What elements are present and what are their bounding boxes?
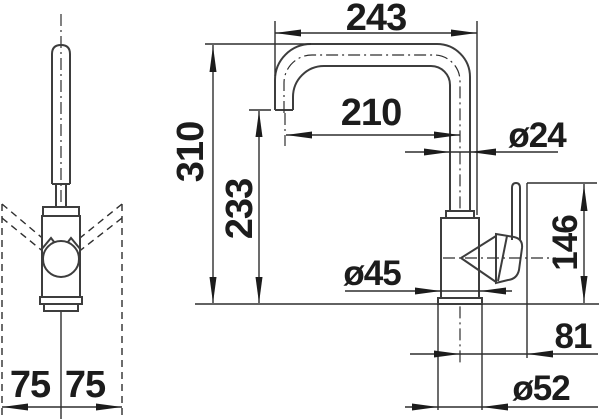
- base-flange-front: [40, 297, 82, 304]
- arrowhead: [470, 149, 496, 156]
- arrowhead: [527, 351, 553, 358]
- dim-label-233: 233: [219, 179, 261, 239]
- dimension-75-75: 75 75: [2, 364, 122, 411]
- dimension-210: 210: [285, 92, 460, 146]
- arrowhead: [256, 111, 263, 137]
- arrowhead: [434, 132, 460, 139]
- collar-front: [43, 207, 79, 216]
- dim-label-210: 210: [341, 92, 401, 134]
- arrowhead: [210, 46, 217, 72]
- arrowhead: [434, 351, 460, 358]
- dim-label-d45: ø45: [343, 254, 401, 293]
- dimension-d52: ø52: [405, 369, 598, 411]
- arrowhead: [210, 277, 217, 303]
- arrowhead: [415, 288, 441, 295]
- dimension-146: 146: [527, 183, 597, 303]
- faucet-technical-drawing: 75 75 243: [0, 0, 600, 419]
- dim-label-81: 81: [555, 317, 592, 356]
- arrowhead: [424, 149, 450, 156]
- arrowhead: [256, 277, 263, 303]
- dim-label-243: 243: [346, 0, 406, 39]
- dim-label-75-right: 75: [65, 364, 106, 406]
- base-skirt-front: [44, 304, 78, 311]
- dimension-d24: ø24: [405, 116, 567, 156]
- arrowhead: [482, 404, 508, 411]
- ball-joint-front: [43, 241, 79, 277]
- side-view: 243 310 233 210: [170, 0, 599, 411]
- arrowhead: [581, 276, 588, 302]
- spout-inner-contour: [293, 66, 450, 211]
- arrowhead: [480, 288, 506, 295]
- lever-rod: [512, 183, 520, 240]
- dim-label-75-left: 75: [10, 364, 51, 406]
- dim-label-d52: ø52: [512, 369, 570, 408]
- collar-side: [446, 211, 474, 218]
- dim-label-146: 146: [546, 215, 585, 271]
- side-faucet-outline: [275, 44, 556, 410]
- technical-drawing-canvas: 75 75 243: [0, 0, 600, 419]
- front-view: 75 75: [2, 14, 122, 419]
- arrowhead: [286, 132, 312, 139]
- dimension-233: 233: [219, 110, 271, 303]
- arrowhead: [275, 30, 301, 37]
- dimension-d45: ø45: [343, 254, 512, 295]
- arrowhead: [412, 404, 438, 411]
- base-flange-side: [438, 298, 482, 304]
- arrowhead: [451, 30, 477, 37]
- dim-label-d24: ø24: [508, 116, 567, 155]
- dim-label-310: 310: [170, 122, 212, 182]
- arrowhead: [581, 185, 588, 211]
- dimension-310: 310: [170, 44, 311, 303]
